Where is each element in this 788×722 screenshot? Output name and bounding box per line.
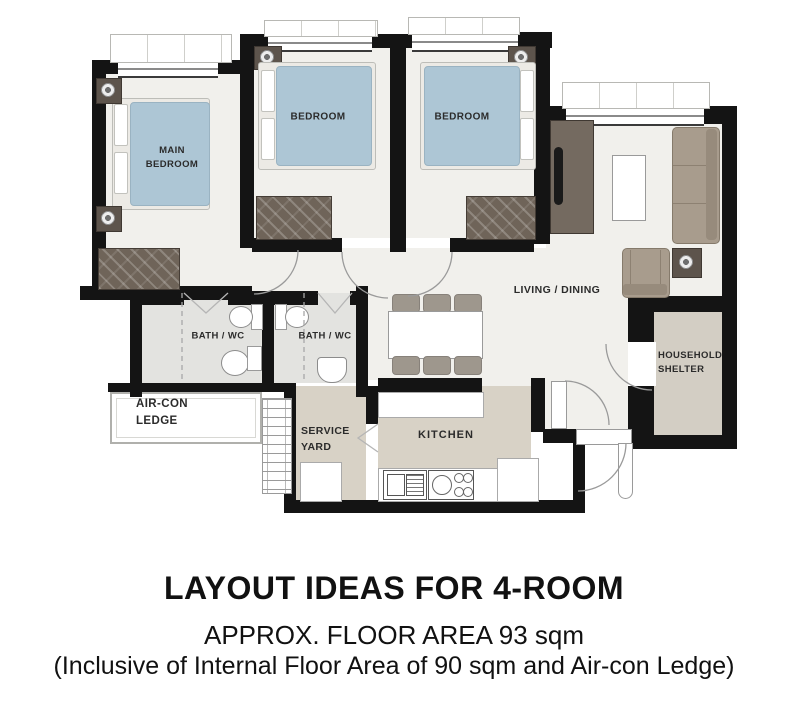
bedroom3-label: BEDROOM [434, 112, 489, 123]
kitchen-label: KITCHEN [418, 429, 474, 441]
bath2-label: BATH / WC [298, 331, 351, 342]
plan-title: LAYOUT IDEAS FOR 4-ROOM [0, 570, 788, 607]
service-yard-label: SERVICE YARD [301, 424, 371, 456]
bedroom2-label: BEDROOM [290, 112, 345, 123]
plan-subtitle: APPROX. FLOOR AREA 93 sqm [0, 620, 788, 651]
shelter-door-arc [606, 344, 652, 390]
bath2-door-marker [318, 293, 352, 313]
bedroom3-door-arc [408, 252, 452, 296]
aircon-ledge-label: AIR-CON LEDGE [136, 396, 220, 431]
door-swing-overlay [0, 0, 788, 545]
kitchen-door-arc [565, 381, 609, 425]
plan-note: (Inclusive of Internal Floor Area of 90 … [0, 652, 788, 681]
bedroom2-door-arc [342, 252, 388, 298]
main-bedroom-label: MAIN BEDROOM [139, 144, 205, 173]
household-shelter-label: HOUSEHOLD SHELTER [658, 349, 730, 378]
bath1-door-marker [184, 293, 228, 313]
living-dining-label: LIVING / DINING [514, 284, 601, 296]
floor-plan: MAIN BEDROOM BEDROOM BEDROOM BATH / WC B… [0, 0, 788, 545]
entrance-door-arc [578, 443, 626, 491]
main-bedroom-door-arc [254, 250, 298, 294]
floor-plan-page: { "labels": { "main_bedroom": "MAIN BEDR… [0, 0, 788, 722]
bath1-label: BATH / WC [191, 331, 244, 342]
